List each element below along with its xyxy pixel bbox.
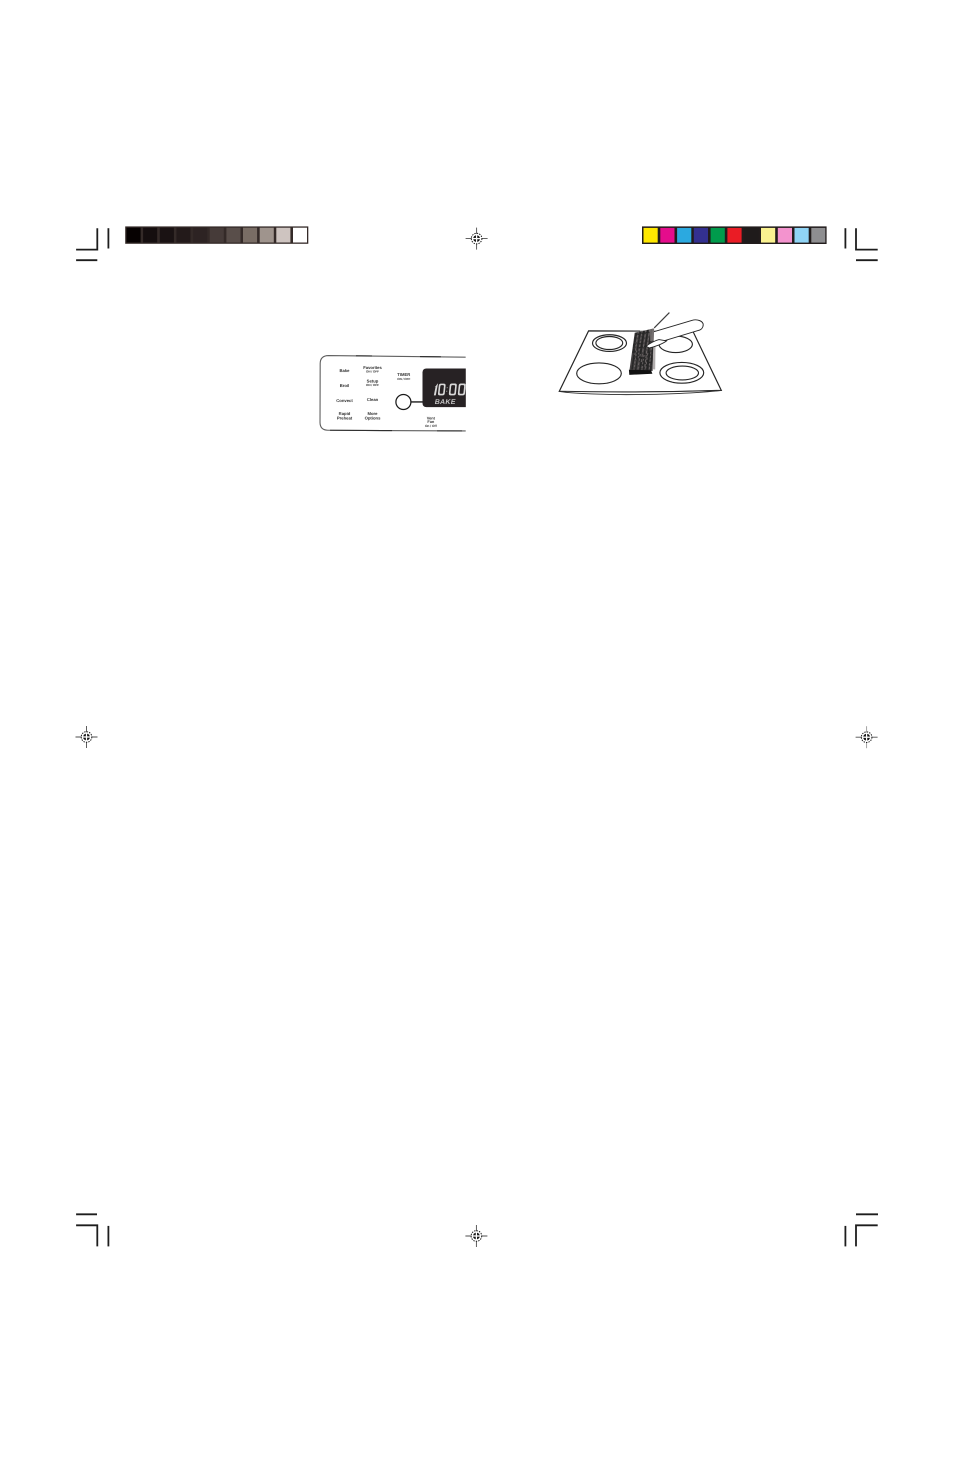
svg-text:BAKE: BAKE	[435, 399, 456, 406]
svg-text:Bake: Bake	[339, 368, 350, 373]
svg-text:TIMER: TIMER	[397, 372, 410, 377]
svg-text:ON / OFF: ON / OFF	[366, 370, 379, 374]
svg-text:Clean: Clean	[367, 397, 379, 402]
svg-text:Convect: Convect	[336, 398, 353, 403]
svg-text:Broil: Broil	[340, 383, 350, 388]
svg-text:ON / OFF: ON / OFF	[397, 377, 410, 381]
svg-text:Options: Options	[365, 415, 381, 420]
svg-text:On / Off: On / Off	[425, 424, 438, 428]
svg-text:Preheat: Preheat	[337, 415, 353, 420]
svg-text:ON / OFF: ON / OFF	[366, 383, 379, 387]
